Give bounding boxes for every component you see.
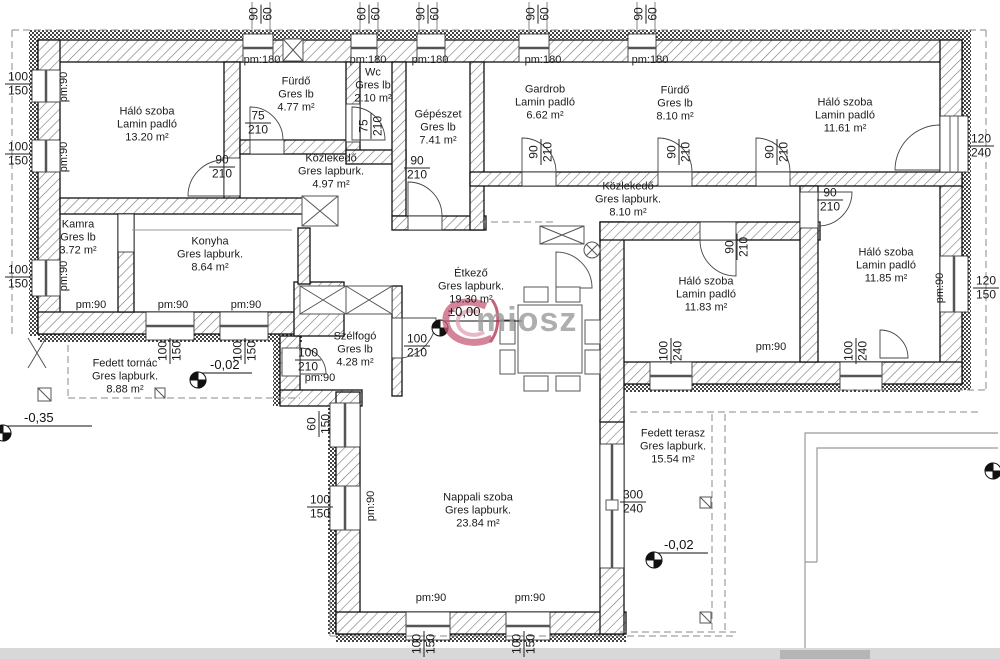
level-marker-porch <box>190 372 252 388</box>
room-label-fedett-tornac: Fedett tornácGres lapburk.8.88 m² <box>92 358 158 397</box>
level-marker-terrace <box>646 552 708 568</box>
room-label-konyha: KonyhaGres lapburk.8.64 m² <box>177 236 243 275</box>
dim-window: 100150 <box>157 338 184 364</box>
pm-label: pm:90 <box>158 299 189 311</box>
dim-door: 90210 <box>724 234 751 260</box>
room-label-halo-szoba-s1: Háló szobaLamin padló11.83 m² <box>676 276 736 315</box>
dim-window: 100150 <box>307 494 333 521</box>
room-label-kozlekedo-2: KözlekedőGres lapburk.8.10 m² <box>595 181 661 220</box>
dim-door: 90210 <box>404 155 430 182</box>
dim-door: 90210 <box>666 139 693 165</box>
room-label-halo-szoba-s2: Háló szobaLamin padló11.85 m² <box>856 247 916 286</box>
dim-window: 100150 <box>511 631 538 657</box>
room-label-furdo-2: FürdőGres lb8.10 m² <box>656 85 693 124</box>
level-value-terrace: -0,02 <box>664 537 694 552</box>
dim-window: 60150 <box>306 411 333 437</box>
dim-door: 90210 <box>764 139 791 165</box>
dim-entrance-door: 100210 <box>295 347 321 374</box>
dim-door: 75210 <box>245 110 271 137</box>
floor-plan: Háló szobaLamin padló13.20 m² FürdőGres … <box>0 0 1000 659</box>
pm-label: pm:90 <box>756 341 787 353</box>
dim-door: 90210 <box>817 187 843 214</box>
room-label-furdo-1: FürdőGres lb4.77 m² <box>277 76 314 115</box>
room-label-fedett-terasz: Fedett teraszGres lapburk.15.54 m² <box>640 428 706 467</box>
level-value-porch: -0,02 <box>210 357 240 372</box>
dim-door: 90210 <box>528 139 555 165</box>
dim-window: 100150 <box>5 141 31 168</box>
dim-window: 100150 <box>411 631 438 657</box>
wardrobe-icon <box>300 286 392 314</box>
level-marker-edge <box>985 463 1000 479</box>
room-label-nappali: Nappali szobaGres lapburk.23.84 m² <box>443 492 513 531</box>
dim-top-window: 9060 <box>248 4 275 23</box>
pm-label: pm:90 <box>934 273 946 304</box>
dim-ticks <box>252 2 655 34</box>
dim-door: 90210 <box>209 154 235 181</box>
room-label-halo-szoba-ne: Háló szobaLamin padló11.61 m² <box>815 97 875 136</box>
room-label-gardrob: GardrobLamin padló6.62 m² <box>515 84 575 123</box>
pm-label: pm:90 <box>58 142 70 173</box>
bottom-strip-dark <box>780 650 870 659</box>
pm-label: pm:180 <box>244 54 281 66</box>
pm-label: pm:90 <box>416 592 447 604</box>
room-label-halo-szoba-nw: Háló szobaLamin padló13.20 m² <box>117 106 177 145</box>
dim-door: 75210 <box>358 113 385 139</box>
level-marker-site <box>0 425 92 441</box>
fireplace-icon <box>556 242 600 288</box>
pm-label: pm:90 <box>58 261 70 292</box>
dim-top-window: 9060 <box>633 4 660 23</box>
pm-label: pm:90 <box>231 299 262 311</box>
dim-top-window: 9060 <box>415 4 442 23</box>
pm-label: pm:90 <box>76 299 107 311</box>
dim-sliding-door: 300240 <box>620 489 646 516</box>
watermark-text: miosz <box>476 300 577 340</box>
dim-window: 100240 <box>658 338 685 364</box>
dim-window: 100150 <box>5 71 31 98</box>
dim-window: 100240 <box>843 338 870 364</box>
level-value-site: -0,35 <box>24 410 54 425</box>
pm-label: pm:180 <box>632 54 669 66</box>
pm-label: pm:90 <box>305 372 336 384</box>
room-label-wc: WcGres lb2.10 m² <box>354 67 391 106</box>
dim-door: 100210 <box>404 333 430 360</box>
dim-top-window: 6060 <box>356 4 383 23</box>
pm-label: pm:90 <box>515 592 546 604</box>
pm-label: pm:90 <box>58 72 70 103</box>
pm-label: pm:180 <box>412 54 449 66</box>
dim-french-door: 120240 <box>968 133 994 160</box>
room-label-szelfogo: SzélfogóGres lb4.28 m² <box>334 331 377 370</box>
pm-label: pm:180 <box>350 54 387 66</box>
pm-label: pm:90 <box>365 491 377 522</box>
neighbor-outline <box>805 433 998 652</box>
dim-window: 100150 <box>5 264 31 291</box>
room-label-kozlekedo-1: KözlekedőGres lapburk.4.97 m² <box>298 153 364 192</box>
room-label-gepeszet: GépészetGres lb7.41 m² <box>414 109 461 148</box>
dim-window: 120150 <box>973 275 999 302</box>
room-label-kamra: KamraGres lb3.72 m² <box>59 219 96 258</box>
dim-top-window: 9060 <box>525 4 552 23</box>
pm-label: pm:180 <box>525 54 562 66</box>
